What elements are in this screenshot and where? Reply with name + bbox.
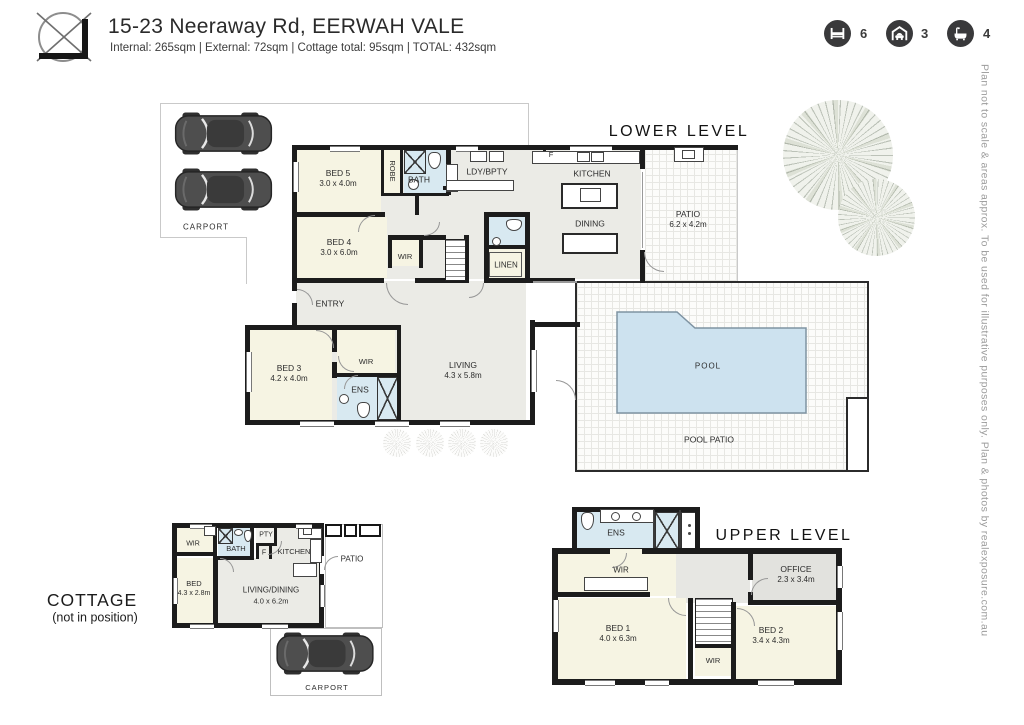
- disclaimer-note: Plan not to scale & areas approx. To be …: [979, 64, 990, 719]
- bath-icon: [947, 20, 974, 47]
- room-label-wir-bed3: WIR: [359, 357, 374, 367]
- wall: [748, 600, 836, 605]
- room-label-dining: DINING: [575, 218, 605, 229]
- upper-label-bed2: BED 23.4 x 4.3m: [752, 625, 789, 647]
- room-dims: 4.0 x 6.2m: [243, 596, 299, 606]
- room-name: BED 5: [319, 168, 356, 179]
- wall: [397, 373, 401, 423]
- room-label-ldy: LDY/BPTY: [466, 166, 507, 177]
- wall: [388, 235, 392, 268]
- wall: [484, 212, 530, 217]
- room-name: POOL: [695, 362, 721, 373]
- room-dims: 4.3 x 5.8m: [444, 371, 481, 382]
- window-marker: [553, 600, 559, 632]
- room-label-robe: ROBE: [387, 160, 397, 181]
- carport-label: CARPORT: [183, 223, 229, 234]
- room-name: F: [262, 548, 266, 557]
- window-marker: [585, 680, 615, 686]
- bath-icon-glyph: [952, 25, 969, 42]
- wall: [688, 598, 693, 685]
- bath-count: 4: [983, 26, 990, 41]
- shower: [655, 512, 679, 550]
- room-name: DINING: [575, 218, 605, 229]
- room-label-patio: PATIO6.2 x 4.2m: [669, 209, 706, 231]
- bed-count: 6: [860, 26, 867, 41]
- wall: [177, 552, 213, 556]
- wall: [695, 507, 700, 553]
- sliding-door-line: [642, 172, 643, 248]
- room-name: PATIO: [669, 209, 706, 220]
- room-label-linen: LINEN: [494, 261, 518, 272]
- window-marker: [375, 421, 409, 427]
- page-title: 15-23 Neeraway Rd, EERWAH VALE: [108, 15, 464, 39]
- upper-label-ens: ENS: [607, 527, 624, 538]
- window-marker: [293, 162, 299, 192]
- cottage-label-wir: WIR: [186, 539, 200, 548]
- wall: [381, 147, 384, 193]
- door-arc: [556, 380, 576, 400]
- wall: [415, 193, 419, 215]
- cottage-label-fridge: F: [262, 548, 266, 557]
- garage-icon: [886, 20, 913, 47]
- wall: [731, 602, 736, 685]
- room-label-bed5: BED 53.0 x 4.0m: [319, 168, 356, 190]
- room-name: ENS: [607, 527, 624, 538]
- wall: [397, 325, 401, 377]
- realexposure-logo: [30, 10, 98, 64]
- stairs: [445, 239, 466, 281]
- cottage-label-bath: BATH: [226, 544, 245, 554]
- shower: [218, 528, 233, 544]
- room-name: KITCHEN: [278, 547, 311, 557]
- room-name: LIVING: [444, 360, 481, 371]
- room-name: BED 1: [599, 623, 636, 634]
- wall: [388, 235, 446, 240]
- room-name: WIR: [398, 252, 413, 262]
- window-marker: [440, 421, 470, 427]
- sink: [303, 528, 312, 535]
- room-name: BATH: [408, 174, 430, 185]
- room-name: LDY/BPTY: [466, 166, 507, 177]
- room-label-ens: ENS: [351, 384, 368, 395]
- room-name: LIVING/DINING: [243, 586, 299, 597]
- bed-icon: [824, 20, 851, 47]
- basin: [632, 512, 641, 521]
- room-dims: 3.0 x 4.0m: [319, 179, 356, 190]
- room-name: LINEN: [494, 261, 518, 272]
- room-dims: 4.2 x 4.0m: [270, 374, 307, 385]
- window-marker: [645, 680, 669, 686]
- closet-dot: [688, 524, 691, 527]
- plant: [838, 179, 915, 256]
- wall: [552, 548, 842, 554]
- room-label-pool: POOL: [695, 362, 721, 373]
- wall: [695, 644, 731, 648]
- wall: [400, 147, 403, 193]
- room-label-living: LIVING4.3 x 5.8m: [444, 360, 481, 382]
- basin: [339, 394, 349, 404]
- window-marker: [330, 146, 360, 152]
- room-label-bed3: BED 34.2 x 4.0m: [270, 363, 307, 385]
- cottage-label-pty: PTY: [259, 530, 273, 539]
- patio-edge: [737, 150, 738, 281]
- room-name: CARPORT: [183, 223, 229, 234]
- room-name: BED 4: [320, 237, 357, 248]
- garage-icon-glyph: [891, 25, 908, 42]
- site-line: [160, 103, 529, 104]
- room-name: WIR: [613, 566, 629, 577]
- basin: [611, 512, 620, 521]
- appliance: [489, 151, 504, 162]
- wall: [213, 556, 218, 628]
- room-label-fridge: F: [549, 150, 554, 160]
- lower-level-title: LOWER LEVEL: [609, 123, 749, 141]
- room-label-kitchen: KITCHEN: [573, 168, 610, 179]
- wall: [679, 510, 681, 550]
- wall: [245, 325, 401, 330]
- window-marker: [262, 624, 288, 629]
- room-dims: 6.2 x 4.2m: [669, 220, 706, 231]
- plant: [383, 429, 411, 457]
- pergola-beam: [325, 524, 342, 537]
- room-dims: 4.3 x 2.8m: [178, 589, 211, 598]
- basin: [234, 529, 243, 536]
- cottage-label-patio: PATIO: [341, 555, 364, 566]
- room-label-bath: BATH: [408, 174, 430, 185]
- section-subtitle-text: (not in position): [52, 610, 137, 627]
- basin: [492, 237, 501, 246]
- bbq-grill: [682, 150, 695, 159]
- wall: [572, 507, 577, 553]
- wir-bench: [584, 577, 648, 591]
- window-marker: [758, 680, 794, 686]
- cottage-label-carport: CARPORT: [305, 683, 349, 693]
- kitchen-island: [293, 563, 317, 577]
- window-marker: [837, 612, 843, 650]
- upper-hallway: [676, 554, 750, 603]
- garage-count: 3: [921, 26, 928, 41]
- upper-label-bed1: BED 14.0 x 6.3m: [599, 623, 636, 645]
- room-label-entry: ENTRY: [316, 298, 345, 309]
- cottage-label-bed: BED4.3 x 2.8m: [178, 579, 211, 599]
- shower: [404, 150, 426, 174]
- room-name: BED 2: [752, 625, 789, 636]
- dining-table: [562, 233, 618, 254]
- room-name: BATH: [226, 544, 245, 554]
- pergola-beam: [359, 524, 381, 537]
- car: [172, 112, 275, 155]
- cottage-subtitle: (not in position): [52, 610, 137, 627]
- room-name: CARPORT: [305, 683, 349, 693]
- room-name: POOL PATIO: [684, 434, 734, 445]
- window-marker: [190, 624, 214, 629]
- room-label-pool-patio: POOL PATIO: [684, 434, 734, 445]
- cottage-patio-area: [325, 524, 383, 628]
- appliance: [470, 151, 487, 162]
- kitchen-bench: [310, 539, 322, 563]
- room-name: ENTRY: [316, 298, 345, 309]
- sink: [591, 152, 604, 162]
- cooktop: [580, 188, 601, 202]
- room-name: KITCHEN: [573, 168, 610, 179]
- site-line: [160, 103, 161, 238]
- car: [276, 632, 374, 675]
- site-line: [160, 237, 247, 238]
- room-name: WIR: [706, 656, 721, 666]
- sink: [577, 152, 590, 162]
- room-dims: 4.0 x 6.3m: [599, 634, 636, 645]
- room-label-wir-bed4: WIR: [398, 252, 413, 262]
- room-name: WIR: [359, 357, 374, 367]
- wall: [335, 373, 399, 377]
- plant: [448, 429, 476, 457]
- pergola-beam: [344, 524, 357, 537]
- plant: [416, 429, 444, 457]
- stairs: [695, 598, 733, 646]
- shower: [377, 377, 398, 420]
- upper-label-wir-mid: WIR: [706, 656, 721, 666]
- window-marker: [837, 566, 843, 588]
- room-name: BED: [178, 579, 211, 589]
- window-marker: [300, 421, 334, 427]
- plant: [480, 429, 508, 457]
- upper-label-wir: WIR: [613, 566, 629, 577]
- wall: [558, 592, 650, 597]
- cottage-label-kitchen: KITCHEN: [278, 547, 311, 557]
- room-dims: 2.3 x 3.4m: [777, 575, 814, 586]
- wall: [292, 303, 297, 327]
- room-name: BED 3: [270, 363, 307, 374]
- cottage-label-living: LIVING/DINING4.0 x 6.2m: [243, 586, 299, 607]
- wall: [530, 322, 580, 327]
- wall: [748, 552, 753, 580]
- upper-level-title: UPPER LEVEL: [716, 527, 853, 545]
- room-name: PATIO: [341, 555, 364, 566]
- window-marker: [320, 585, 325, 607]
- wall: [484, 245, 530, 249]
- wall: [256, 546, 259, 559]
- room-name: WIR: [186, 539, 200, 548]
- closet-dot: [688, 532, 691, 535]
- room-label-bed4: BED 43.0 x 6.0m: [320, 237, 357, 259]
- room-name: ROBE: [388, 160, 397, 181]
- laundry-bench: [446, 180, 514, 191]
- room-dims: 3.4 x 4.3m: [752, 636, 789, 647]
- room-name: PTY: [259, 530, 273, 539]
- upper-label-office: OFFICE2.3 x 3.4m: [777, 564, 814, 586]
- bed-icon-glyph: [829, 25, 846, 42]
- area-summary: Internal: 265sqm | External: 72sqm | Cot…: [110, 42, 496, 54]
- floorplan-page: 15-23 Neeraway Rd, EERWAH VALE Internal:…: [0, 0, 1024, 725]
- room-name: ENS: [351, 384, 368, 395]
- room-name: OFFICE: [777, 564, 814, 575]
- closet: [204, 526, 216, 536]
- window-marker: [246, 352, 252, 392]
- wall: [419, 235, 423, 268]
- site-line: [528, 103, 529, 147]
- pool-patio-notch: [846, 397, 867, 470]
- wall: [292, 278, 384, 283]
- vanity: [600, 509, 654, 523]
- site-line: [246, 237, 247, 284]
- room-dims: 3.0 x 6.0m: [320, 248, 357, 259]
- room-name: F: [549, 150, 554, 160]
- wall: [172, 523, 177, 628]
- car: [172, 168, 275, 211]
- sliding-door-line: [533, 281, 577, 283]
- window-marker: [531, 350, 537, 392]
